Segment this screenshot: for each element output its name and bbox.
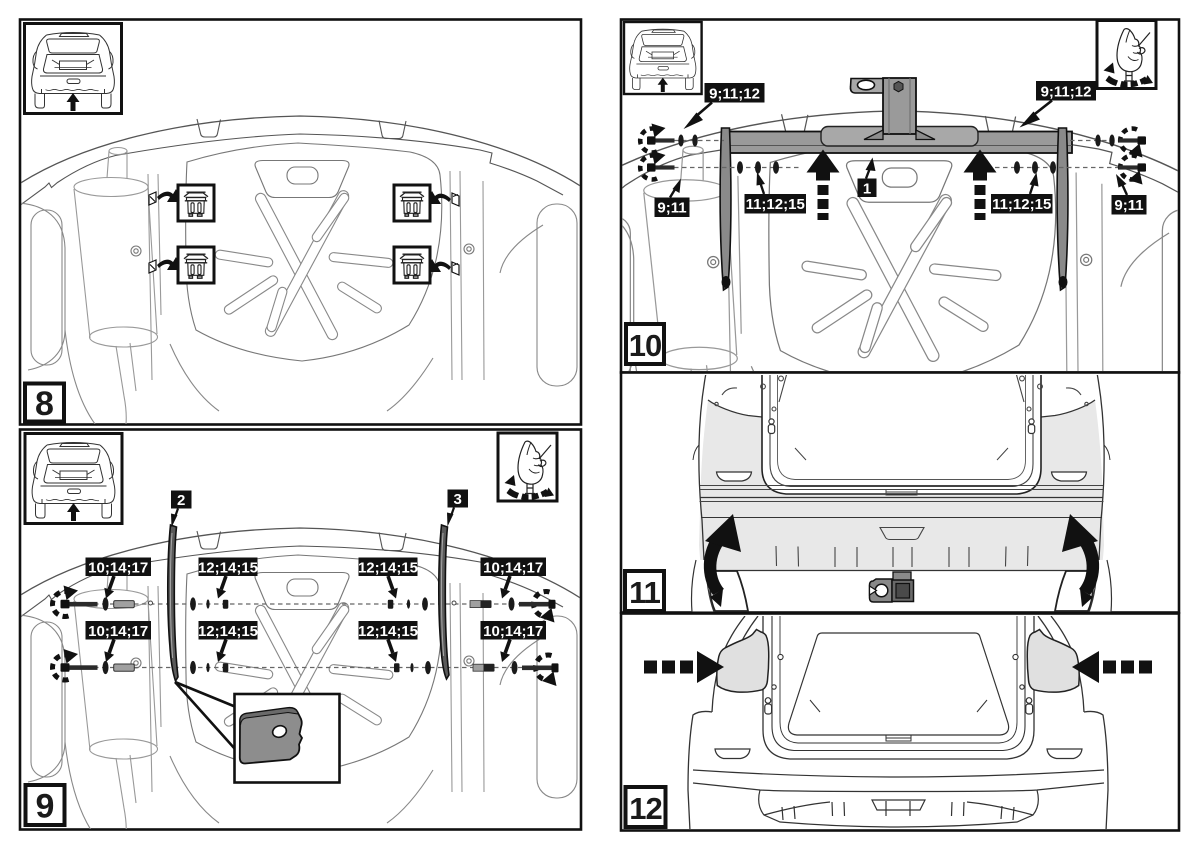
svg-text:12;14;15: 12;14;15 — [358, 560, 418, 577]
svg-text:12;14;15: 12;14;15 — [198, 560, 258, 577]
svg-text:10;14;17: 10;14;17 — [483, 560, 543, 577]
svg-text:12;14;15: 12;14;15 — [358, 623, 418, 640]
svg-text:1: 1 — [863, 181, 871, 198]
svg-text:9;11: 9;11 — [657, 200, 686, 217]
svg-text:9: 9 — [36, 788, 55, 826]
svg-text:12;14;15: 12;14;15 — [198, 623, 258, 640]
svg-text:11;12;15: 11;12;15 — [746, 196, 805, 213]
svg-text:9;11;12: 9;11;12 — [709, 86, 760, 103]
svg-text:9;11: 9;11 — [1114, 197, 1143, 214]
svg-text:9;11;12: 9;11;12 — [1041, 84, 1092, 101]
svg-text:8: 8 — [35, 385, 54, 423]
svg-text:2: 2 — [177, 492, 185, 509]
svg-text:11: 11 — [629, 575, 661, 610]
svg-text:10: 10 — [629, 328, 661, 363]
svg-text:10;14;17: 10;14;17 — [88, 560, 148, 577]
svg-text:3: 3 — [454, 491, 462, 508]
svg-text:12: 12 — [629, 791, 661, 826]
svg-text:10;14;17: 10;14;17 — [88, 623, 148, 640]
svg-text:11;12;15: 11;12;15 — [992, 196, 1051, 213]
svg-text:10;14;17: 10;14;17 — [483, 623, 543, 640]
